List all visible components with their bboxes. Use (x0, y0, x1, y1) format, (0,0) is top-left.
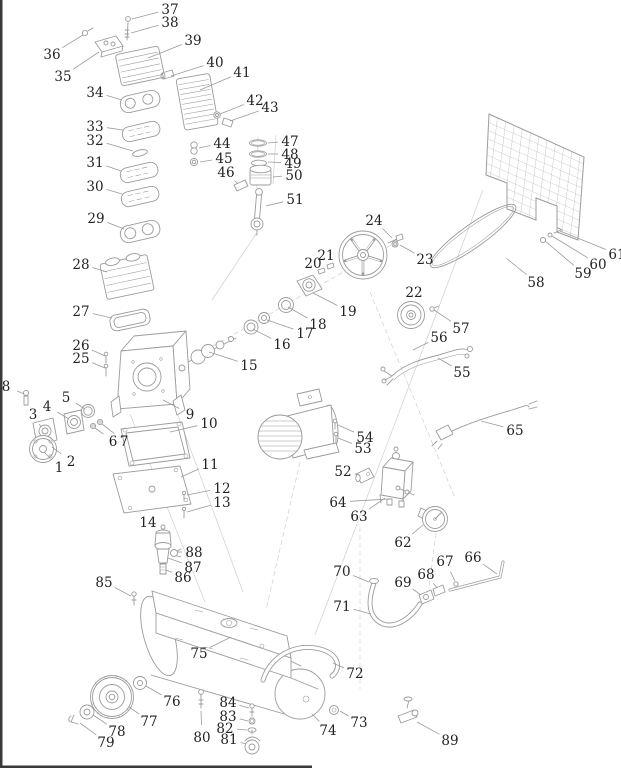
caster-nut (249, 718, 255, 724)
part-label-70: 70 (333, 564, 350, 580)
tank-end-cap (275, 669, 325, 719)
caster-wheel (245, 730, 260, 754)
leader-line-54 (338, 425, 354, 432)
leader-line-18 (288, 307, 308, 318)
part-label-23: 23 (416, 252, 433, 268)
part-label-39: 39 (184, 33, 201, 49)
part-label-36: 36 (43, 47, 60, 63)
part-label-18: 18 (309, 317, 326, 333)
valve-plate-2 (119, 161, 159, 184)
part-label-85: 85 (95, 575, 112, 591)
leader-line-69 (413, 589, 421, 595)
part-label-63: 63 (350, 509, 367, 525)
part-label-22: 22 (405, 285, 422, 301)
leader-line-29 (107, 222, 124, 229)
base-gasket (121, 422, 190, 466)
leader-line-82 (237, 729, 247, 730)
leader-line-19 (313, 293, 337, 306)
valve-ring (191, 142, 197, 148)
wheel-washer-outer (134, 677, 147, 690)
part-label-71: 71 (333, 599, 350, 615)
crankcase-foot (111, 396, 121, 417)
part-label-30: 30 (86, 179, 103, 195)
leader-line-42 (220, 105, 244, 115)
pipe-ferrule (454, 582, 458, 586)
head-bolt-shaft (125, 23, 129, 40)
part-label-65: 65 (506, 423, 523, 439)
leader-line-85 (115, 588, 131, 597)
leader-line-67 (450, 572, 455, 581)
leader-line-24 (383, 229, 393, 239)
part-label-56: 56 (430, 330, 447, 346)
leader-line-38 (131, 25, 159, 33)
cylinder-gasket (109, 308, 151, 332)
part-label-27: 27 (72, 304, 89, 320)
leader-line-64 (350, 499, 389, 501)
leader-line-47 (268, 142, 278, 143)
leader-line-8 (17, 391, 24, 394)
drain-plug (330, 706, 339, 715)
part-label-13: 13 (213, 495, 230, 511)
leader-line-76 (146, 686, 162, 695)
part-label-88: 88 (185, 545, 202, 561)
part-label-77: 77 (140, 714, 157, 730)
electric-motor (256, 389, 340, 459)
head-outlet-fitting (222, 118, 233, 127)
unloader-pipe (450, 562, 503, 590)
leader-line-46 (235, 181, 239, 185)
part-label-75: 75 (190, 646, 207, 662)
connecting-rod (251, 189, 263, 235)
leader-line-58 (506, 258, 527, 275)
leader-line-87 (168, 558, 182, 563)
part-label-28: 28 (72, 257, 89, 273)
part-label-60: 60 (589, 257, 606, 273)
guard-washer-2 (548, 233, 552, 237)
cotter-pin (69, 715, 78, 724)
valve-plate-3 (120, 185, 160, 208)
crankshaft-assembly (186, 263, 334, 364)
leader-line-44 (199, 146, 210, 149)
part-label-57: 57 (452, 321, 469, 337)
part-label-54: 54 (356, 430, 373, 446)
flywheel (339, 231, 403, 279)
part-label-3: 3 (29, 407, 38, 423)
leader-line-32 (107, 143, 134, 151)
leader-line-73 (340, 711, 349, 716)
leader-line-49 (268, 162, 281, 163)
leader-line-86 (166, 570, 172, 572)
part-label-52: 52 (334, 464, 351, 480)
part-label-79: 79 (97, 735, 114, 751)
motor-junction-box (297, 389, 322, 406)
part-label-67: 67 (436, 554, 453, 570)
part-label-80: 80 (193, 730, 210, 746)
wheel-washer-inner (80, 705, 94, 719)
leader-line-65 (481, 421, 503, 427)
head-bolt-head (126, 17, 131, 22)
part-label-2: 2 (67, 454, 76, 470)
pump-cover (30, 436, 57, 463)
part-label-44: 44 (213, 136, 230, 152)
part-label-1: 1 (55, 460, 64, 476)
valve-plate (121, 120, 161, 143)
leader-line-23 (400, 245, 415, 253)
leader-line-35 (73, 52, 99, 69)
part-label-33: 33 (86, 119, 103, 135)
leader-line-89 (417, 722, 440, 734)
part-label-41: 41 (233, 65, 250, 81)
leader-line-7 (102, 424, 115, 434)
part-label-76: 76 (163, 694, 180, 710)
part-label-51: 51 (286, 192, 303, 208)
pipe-nipple (433, 585, 445, 596)
part-label-55: 55 (453, 365, 470, 381)
breather-bolt (23, 390, 28, 395)
part-label-26: 26 (72, 338, 89, 354)
part-label-69: 69 (394, 575, 411, 591)
leader-line-79 (80, 723, 96, 735)
piston (250, 165, 271, 185)
part-label-89: 89 (441, 733, 458, 749)
tank-bolt (132, 592, 136, 605)
flywheel-hub (358, 250, 369, 261)
leader-line-60 (552, 236, 588, 258)
leader-line-15 (209, 352, 238, 361)
small-washer-2 (97, 419, 102, 424)
base-plate (113, 466, 191, 513)
bearing (244, 320, 258, 334)
part-label-46: 46 (217, 165, 234, 181)
unloader-valve (95, 36, 123, 52)
leader-line-57 (434, 310, 451, 321)
leader-line-43 (230, 111, 259, 121)
part-label-21: 21 (317, 248, 334, 264)
leader-line-59 (545, 241, 574, 265)
leader-line-30 (107, 189, 123, 194)
part-label-10: 10 (200, 416, 217, 432)
part-label-15: 15 (240, 358, 257, 374)
cylinder (99, 251, 154, 300)
part-label-87: 87 (184, 560, 201, 576)
crankcase (111, 331, 190, 417)
exploded-parts-diagram: 1234567891011121314151617181920212223242… (0, 0, 621, 768)
valve-nut (190, 158, 197, 165)
part-label-58: 58 (527, 275, 544, 291)
part-label-16: 16 (273, 337, 290, 353)
small-gasket (132, 148, 148, 157)
guard-washer (540, 237, 545, 242)
leader-line-25 (92, 363, 105, 368)
leader-line-70 (353, 576, 369, 583)
leader-line-33 (107, 128, 123, 130)
part-labels: 1234567891011121314151617181920212223242… (2, 2, 621, 751)
leader-line-6 (95, 428, 103, 434)
leader-line-34 (107, 95, 123, 100)
part-label-35: 35 (54, 69, 71, 85)
part-label-68: 68 (417, 567, 434, 583)
part-label-24: 24 (365, 213, 382, 229)
leader-line-80 (201, 711, 202, 725)
belt-guard-mesh (486, 114, 584, 240)
leader-line-40 (171, 66, 204, 76)
part-label-38: 38 (161, 15, 178, 31)
head-nut (214, 112, 220, 118)
oil-seal (279, 298, 294, 313)
filter-nipple (160, 564, 166, 574)
filter-body (157, 549, 169, 563)
belt-guard (486, 114, 584, 240)
part-label-72: 72 (346, 666, 363, 682)
part-label-14: 14 (139, 515, 156, 531)
part-label-43: 43 (261, 100, 278, 116)
caster-bolt (250, 704, 254, 708)
leader-line-17 (267, 320, 294, 329)
pressure-switch (380, 447, 414, 507)
unloader-screw (82, 30, 87, 35)
part-label-4: 4 (43, 399, 52, 415)
leader-line-83 (240, 719, 248, 721)
part-label-61: 61 (608, 247, 621, 263)
pulley (398, 302, 440, 329)
leader-line-61 (560, 231, 606, 250)
leader-line-56 (413, 342, 428, 350)
flywheel-washer (392, 241, 398, 247)
head-plate-stack (82, 17, 164, 376)
leader-line-50 (273, 176, 282, 177)
part-label-8: 8 (2, 379, 11, 395)
leader-line-66 (483, 564, 497, 574)
finned-head (176, 73, 219, 130)
part-label-32: 32 (86, 133, 103, 149)
part-label-31: 31 (86, 155, 103, 171)
part-label-84: 84 (219, 695, 236, 711)
part-label-6: 6 (109, 434, 118, 450)
leader-line-45 (200, 160, 212, 162)
leader-line-53 (338, 438, 352, 444)
valve-plate-upper (119, 89, 162, 115)
leader-line-31 (106, 166, 121, 171)
exploded-parts-diagram-page: 1234567891011121314151617181920212223242… (0, 0, 621, 768)
power-plug (436, 425, 453, 440)
leader-line-68 (433, 583, 437, 588)
leader-line-37 (132, 12, 158, 19)
part-label-73: 73 (350, 715, 367, 731)
part-label-34: 34 (86, 85, 103, 101)
leader-line-74 (312, 714, 320, 722)
leader-line-27 (93, 314, 112, 318)
leader-line-26 (92, 350, 105, 356)
leader-line-13 (187, 505, 211, 512)
part-label-9: 9 (186, 407, 195, 423)
part-label-19: 19 (339, 304, 356, 320)
part-label-66: 66 (464, 550, 481, 566)
axle-bolt (199, 690, 204, 708)
motor-fan-cover (258, 415, 302, 459)
small-washer (90, 423, 95, 428)
outlet-pipework (370, 562, 504, 625)
part-label-7: 7 (120, 434, 129, 450)
pressure-gauge (418, 507, 448, 532)
leader-line-62 (412, 525, 423, 534)
leader-line-36 (62, 35, 83, 48)
part-label-29: 29 (87, 211, 104, 227)
drain-cock (398, 697, 418, 723)
part-label-64: 64 (329, 495, 346, 511)
wheel-assembly (69, 676, 204, 725)
leader-line-77 (129, 707, 139, 714)
part-label-62: 62 (394, 535, 411, 551)
shaft-key-2 (327, 263, 334, 269)
leader-line-16 (253, 329, 271, 339)
switch-knob (394, 447, 398, 451)
part-label-83: 83 (219, 709, 236, 725)
leader-line-55 (438, 358, 452, 366)
washer (259, 313, 270, 324)
head-gasket (119, 219, 162, 245)
leader-line-81 (241, 742, 247, 744)
leader-line-51 (266, 202, 283, 206)
leader-line-84 (240, 705, 250, 708)
caster-foot-stack (245, 704, 260, 754)
filter-wing-nut (171, 550, 178, 557)
check-valve-fitting (356, 468, 374, 483)
leader-line-11 (181, 469, 199, 477)
part-label-74: 74 (319, 723, 336, 739)
part-label-50: 50 (285, 168, 302, 184)
pulley-screw (430, 307, 434, 311)
part-label-11: 11 (201, 457, 218, 473)
head-cover (115, 46, 165, 86)
part-label-5: 5 (62, 390, 71, 406)
part-label-40: 40 (206, 55, 223, 71)
